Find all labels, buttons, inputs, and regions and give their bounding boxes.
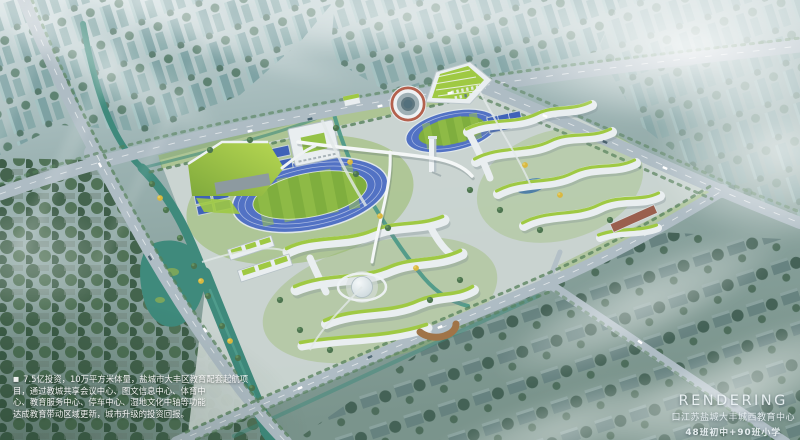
watermark-title: RENDERING — [671, 393, 795, 409]
watermark-program: 48班初中+90班小学 — [671, 425, 795, 438]
project-name-text: 江苏盐城大丰城西教育中心 — [681, 413, 795, 423]
square-marker-icon: 口 — [671, 413, 681, 423]
description-line: ■ 7.5亿投资，10万平方米体量，盐城市大丰区教育配套起航项 — [13, 374, 283, 386]
round-arena — [390, 86, 426, 122]
description-line: 心、教育服务中心、停车中心、湿地文化中轴等功能 — [13, 397, 283, 409]
description-line: 达成教育带动区域更新，城市升级的投资回报。 — [13, 409, 283, 421]
description-line: 目，通过教城共享会议中心、图文信息中心、体育中 — [13, 386, 283, 398]
bullet-square-icon: ■ — [13, 374, 19, 386]
watermark-project-name: 口江苏盐城大丰城西教育中心 — [671, 410, 795, 423]
watermark: RENDERING 口江苏盐城大丰城西教育中心 48班初中+90班小学 — [671, 393, 795, 438]
description-text: 7.5亿投资，10万平方米体量，盐城市大丰区教育配套起航项 — [23, 374, 248, 386]
aerial-rendering-image: ■ 7.5亿投资，10万平方米体量，盐城市大丰区教育配套起航项 目，通过教城共享… — [0, 0, 800, 440]
project-description: ■ 7.5亿投资，10万平方米体量，盐城市大丰区教育配套起航项 目，通过教城共享… — [13, 374, 283, 420]
